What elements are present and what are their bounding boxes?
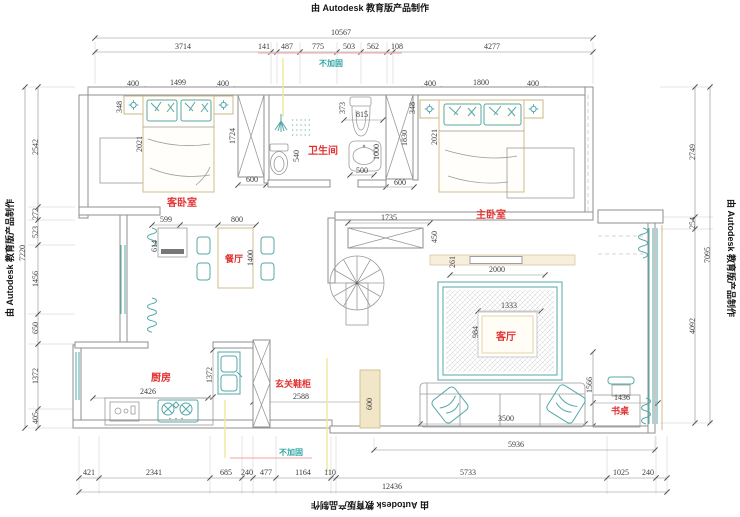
shower-icon xyxy=(275,114,312,135)
desk-chair xyxy=(608,377,634,384)
dim-top-seg: 775 xyxy=(312,42,324,51)
dim-right-seg: 254 xyxy=(688,217,697,229)
dim-living: 984 xyxy=(471,326,480,338)
stove-icon xyxy=(158,400,198,422)
dim-bottom-total: 12436 xyxy=(382,482,402,491)
dim-right-total: 7095 xyxy=(703,247,712,263)
dim-kitchen: 2426 xyxy=(140,387,156,396)
dim-right-seg: 4092 xyxy=(688,318,697,334)
dashed-openings xyxy=(588,95,643,254)
dim-hall: 261 xyxy=(448,256,457,268)
dim-guest: 1724 xyxy=(228,128,237,144)
room-label-dining: 餐厅 xyxy=(224,253,243,264)
dim-hall: 2000 xyxy=(489,265,505,274)
dim-left-seg: 2542 xyxy=(31,139,40,155)
dim-hall: 450 xyxy=(430,231,439,243)
room-label-living: 客厅 xyxy=(495,330,516,343)
dim-living: 1333 xyxy=(501,301,517,310)
tv-cabinet xyxy=(348,228,423,248)
dim-left-seg: 405 xyxy=(31,412,40,424)
dining-area xyxy=(158,228,423,325)
note-top: 不加固 xyxy=(319,58,343,68)
dim-bottom-seg: 1164 xyxy=(295,468,311,477)
dim-top-seg: 487 xyxy=(281,42,293,51)
dim-bath: 1000 xyxy=(372,144,381,160)
shoe-cabinet xyxy=(253,340,270,427)
dim-top-seg: 108 xyxy=(391,42,403,51)
dim-entry: 600 xyxy=(365,398,374,410)
dim-top-seg: 503 xyxy=(343,42,355,51)
dim-living: 3500 xyxy=(498,414,514,423)
kitchen xyxy=(105,352,242,425)
dim-left-seg: 1372 xyxy=(31,368,40,384)
dim-entry: 2588 xyxy=(293,392,309,401)
room-label-desk: 书桌 xyxy=(611,405,630,416)
sofa-pillow xyxy=(430,385,469,424)
dim-living: 1436 xyxy=(614,393,630,402)
note-bottom: 不加固 xyxy=(279,447,303,457)
dim-hall: 800 xyxy=(231,215,243,224)
dim-top-seg: 141 xyxy=(258,42,270,51)
dim-top-seg: 4277 xyxy=(484,42,500,51)
room-label-entry: 玄关鞋柜 xyxy=(275,378,311,389)
dim-living: 1566 xyxy=(585,377,594,393)
watermark-left: 由 Autodesk 教育版产品制作 xyxy=(4,199,15,317)
dim-hall: 1735 xyxy=(381,213,397,222)
bathroom xyxy=(270,97,381,175)
master-bed xyxy=(439,100,524,192)
watermark-bottom: 由 Autodesk 教育版产品制作 xyxy=(311,500,429,511)
tv-icon xyxy=(470,257,522,264)
dim-master: 600 xyxy=(394,178,406,187)
dim-bottom-seg: 5733 xyxy=(460,468,476,477)
dim-bath: 500 xyxy=(356,166,368,175)
dim-top-seg: 562 xyxy=(367,42,379,51)
dim-bottom-seg: 477 xyxy=(260,468,272,477)
watermarks: 由 Autodesk 教育版产品制作 由 Autodesk 教育版产品制作 由 … xyxy=(4,2,737,511)
watermark-right: 由 Autodesk 教育版产品制作 xyxy=(726,199,737,317)
guest-bedroom xyxy=(100,95,264,192)
dim-guest: 348 xyxy=(115,101,124,113)
dim-guest: 2021 xyxy=(135,136,144,152)
dim-bottom-seg: 421 xyxy=(83,468,95,477)
dim-hall: 1400 xyxy=(246,250,255,266)
dim-bottom-seg: 2341 xyxy=(146,468,162,477)
room-label-master-bedroom: 主卧室 xyxy=(476,208,506,221)
living-room xyxy=(420,255,640,427)
dim-master: 400 xyxy=(424,79,436,88)
room-label-bathroom: 卫生间 xyxy=(308,144,338,157)
room-label-kitchen: 厨房 xyxy=(151,371,171,384)
dim-hall: 599 xyxy=(160,215,172,224)
dim-left-seg: 523 xyxy=(31,226,40,238)
dim-master: 1830 xyxy=(400,130,409,146)
dim-guest: 1499 xyxy=(170,78,186,87)
dim-guest: 400 xyxy=(127,79,139,88)
dim-left-total: 7220 xyxy=(18,245,27,261)
dim-master: 2021 xyxy=(430,129,439,145)
sofa-pillow xyxy=(545,383,586,424)
kitchen-cabinet-icon xyxy=(110,402,139,421)
dim-master: 1800 xyxy=(473,78,489,87)
dim-guest: 600 xyxy=(246,175,258,184)
dim-master: 348 xyxy=(408,102,417,114)
dim-left-seg: 650 xyxy=(31,322,40,334)
dim-top-seg: 3714 xyxy=(175,42,191,51)
dim-living-width: 5936 xyxy=(508,440,524,449)
dim-bottom-seg: 685 xyxy=(220,468,232,477)
toilet-icon xyxy=(270,144,288,175)
watermark-top: 由 Autodesk 教育版产品制作 xyxy=(311,2,429,13)
guest-bed xyxy=(143,96,214,192)
dim-bath: 540 xyxy=(292,150,301,162)
dim-guest: 400 xyxy=(217,79,229,88)
dim-bottom-seg: 240 xyxy=(642,468,654,477)
spiral-stairs xyxy=(330,256,384,325)
guest-wardrobe xyxy=(238,95,264,177)
desk-area xyxy=(593,377,640,427)
dim-kitchen: 1372 xyxy=(205,367,214,383)
dim-bottom-seg: 1025 xyxy=(613,468,629,477)
room-label-guest-bedroom: 客卧室 xyxy=(166,196,197,209)
dim-right-seg: 2749 xyxy=(688,144,697,160)
dim-bottom-seg: 240 xyxy=(241,468,253,477)
rug xyxy=(438,282,562,380)
entry xyxy=(253,340,270,427)
kitchen-sink-icon xyxy=(218,352,242,394)
dim-left-seg: 1456 xyxy=(31,271,40,287)
dim-master: 400 xyxy=(527,79,539,88)
floorplan-drawing: 10567 3714 141 487 775 503 562 108 4277 … xyxy=(0,0,740,517)
dim-bottom-seg: 110 xyxy=(324,468,336,477)
dim-bath: 373 xyxy=(338,102,347,114)
dim-left-seg: 272 xyxy=(31,208,40,220)
dim-top-total: 10567 xyxy=(331,28,351,37)
dim-hall: 614 xyxy=(150,240,159,252)
floorplan-canvas: 10567 3714 141 487 775 503 562 108 4277 … xyxy=(0,0,740,517)
hall-cabinet xyxy=(158,228,187,257)
dim-bath: 815 xyxy=(356,110,368,119)
